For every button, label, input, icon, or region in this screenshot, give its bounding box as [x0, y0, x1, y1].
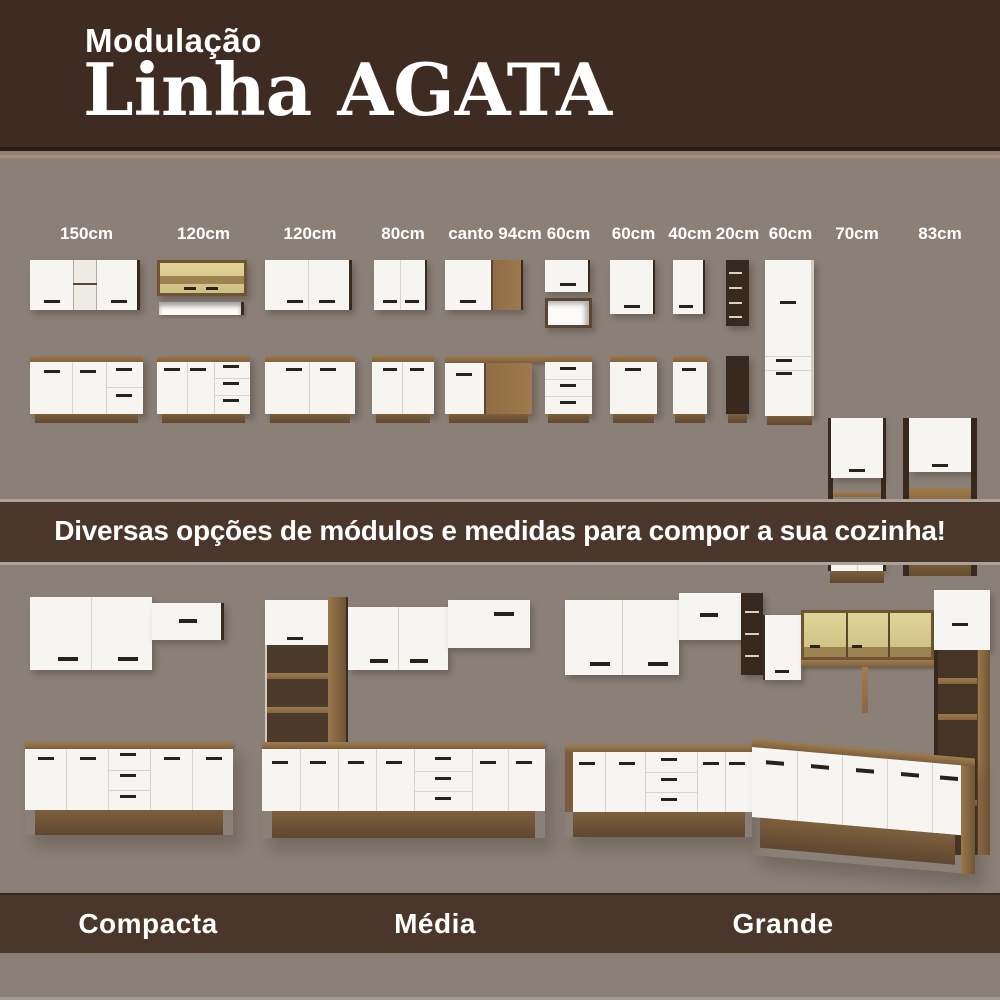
- open-niche: [545, 298, 592, 328]
- module-size-label: 83cm: [883, 224, 997, 244]
- flip-wall-cabinet: [545, 260, 590, 292]
- grande-wall-flip: [679, 593, 741, 640]
- wall-cabinet: [265, 260, 352, 310]
- grande-right-top-cabinet: [934, 590, 990, 650]
- base-cabinet: [30, 356, 143, 414]
- open-shelf-tower: [726, 260, 749, 326]
- side-panel: [961, 765, 975, 874]
- base-cabinet: [265, 356, 355, 414]
- module-120cm-glass: 120cm: [157, 158, 250, 499]
- corner-countertop: [445, 356, 545, 363]
- cabinet-plinth: [376, 414, 430, 423]
- module-20cm: 20cm: [726, 158, 749, 499]
- corner-base-cabinet: [445, 363, 532, 414]
- plinth: [35, 810, 223, 835]
- module-120cm: 120cm: [265, 158, 355, 499]
- module-60cm-tall: 60cm: [765, 158, 816, 499]
- module-40cm: 40cm: [673, 158, 707, 499]
- grande-wood-bar: [801, 660, 934, 667]
- base-doors: [262, 749, 545, 811]
- base-doors: [565, 752, 752, 812]
- grande-corner-door: [763, 615, 801, 680]
- glass-wall-cabinet: [157, 260, 247, 296]
- base-doors: [25, 749, 233, 810]
- grande-glass-cabinet: [801, 610, 934, 660]
- kitchen-label-compacta: Compacta: [58, 895, 238, 953]
- cabinet-plinth: [35, 414, 138, 423]
- banner-text: Diversas opções de módulos e medidas par…: [0, 502, 1000, 560]
- kitchen-label-grande: Grande: [693, 895, 873, 953]
- media-wall-cabinet: [348, 607, 448, 670]
- cabinet-plinth: [613, 414, 654, 423]
- media-tower-top-cabinet: [265, 600, 330, 645]
- module-80cm: 80cm: [372, 158, 434, 499]
- tower-side-panel: [977, 650, 990, 855]
- open-shelf: [159, 302, 244, 315]
- module-60cm-door: 60cm: [610, 158, 657, 499]
- compacta-wall-cabinet: [30, 597, 152, 670]
- base-cabinet: [157, 356, 250, 414]
- wall-cabinet: [673, 260, 705, 314]
- oven-shelf: [833, 492, 881, 497]
- wall-cabinet: [374, 260, 427, 310]
- cabinet-plinth: [449, 414, 528, 423]
- module-60cm-flip: 60cm: [545, 158, 592, 499]
- compacta-base-run: [25, 742, 233, 835]
- countertop: [262, 742, 545, 749]
- base-cabinet: [673, 356, 707, 414]
- upper-cabinet: [909, 418, 971, 472]
- plinth: [272, 811, 535, 838]
- grande-shelf-tower: [741, 593, 763, 675]
- base-cabinet: [610, 356, 657, 414]
- module-150cm: 150cm: [30, 158, 143, 499]
- media-base-run: [262, 742, 545, 838]
- page-title: Linha AGATA: [83, 54, 612, 126]
- banner: Diversas opções de módulos e medidas par…: [0, 499, 1000, 565]
- grande-base-left-run: [565, 745, 752, 837]
- cabinet-plinth: [270, 414, 350, 423]
- grande-vertical-divider: [862, 667, 868, 713]
- upper-cabinet: [831, 418, 883, 478]
- grande-wall-cabinet: [565, 600, 679, 675]
- compacta-wall-flip: [152, 603, 224, 640]
- kitchen-names-band: Compacta Média Grande: [0, 893, 1000, 953]
- grande-base-right-run: [752, 739, 975, 875]
- drawer-base-cabinet: [545, 356, 592, 414]
- base-cabinet: [372, 356, 434, 414]
- cabinet-plinth: [162, 414, 245, 423]
- footer-strip: [0, 953, 1000, 1000]
- tall-cabinet: [765, 260, 814, 416]
- media-side-panel: [328, 597, 348, 743]
- cabinet-plinth: [548, 414, 589, 423]
- kitchens-section: [0, 565, 1000, 893]
- catalog-page: Modulação Linha AGATA 150cm 120cm 120cm: [0, 0, 1000, 1000]
- media-wall-flip: [448, 600, 530, 648]
- countertop: [565, 745, 752, 752]
- corner-wall-cabinet: [445, 260, 523, 310]
- base-unit: [726, 356, 749, 414]
- media-tower-shelves: [265, 645, 330, 742]
- countertop: [25, 742, 233, 749]
- kitchen-label-media: Média: [345, 895, 525, 953]
- modules-section: 150cm 120cm 120cm 80cm: [0, 158, 1000, 499]
- header: Modulação Linha AGATA: [0, 0, 1000, 151]
- wall-cabinet: [30, 260, 140, 310]
- wall-cabinet: [610, 260, 655, 314]
- cabinet-plinth: [767, 416, 812, 425]
- cabinet-plinth: [728, 414, 747, 423]
- module-canto-94cm: canto 94cm: [445, 158, 545, 499]
- plinth: [573, 812, 745, 837]
- cabinet-plinth: [675, 414, 705, 423]
